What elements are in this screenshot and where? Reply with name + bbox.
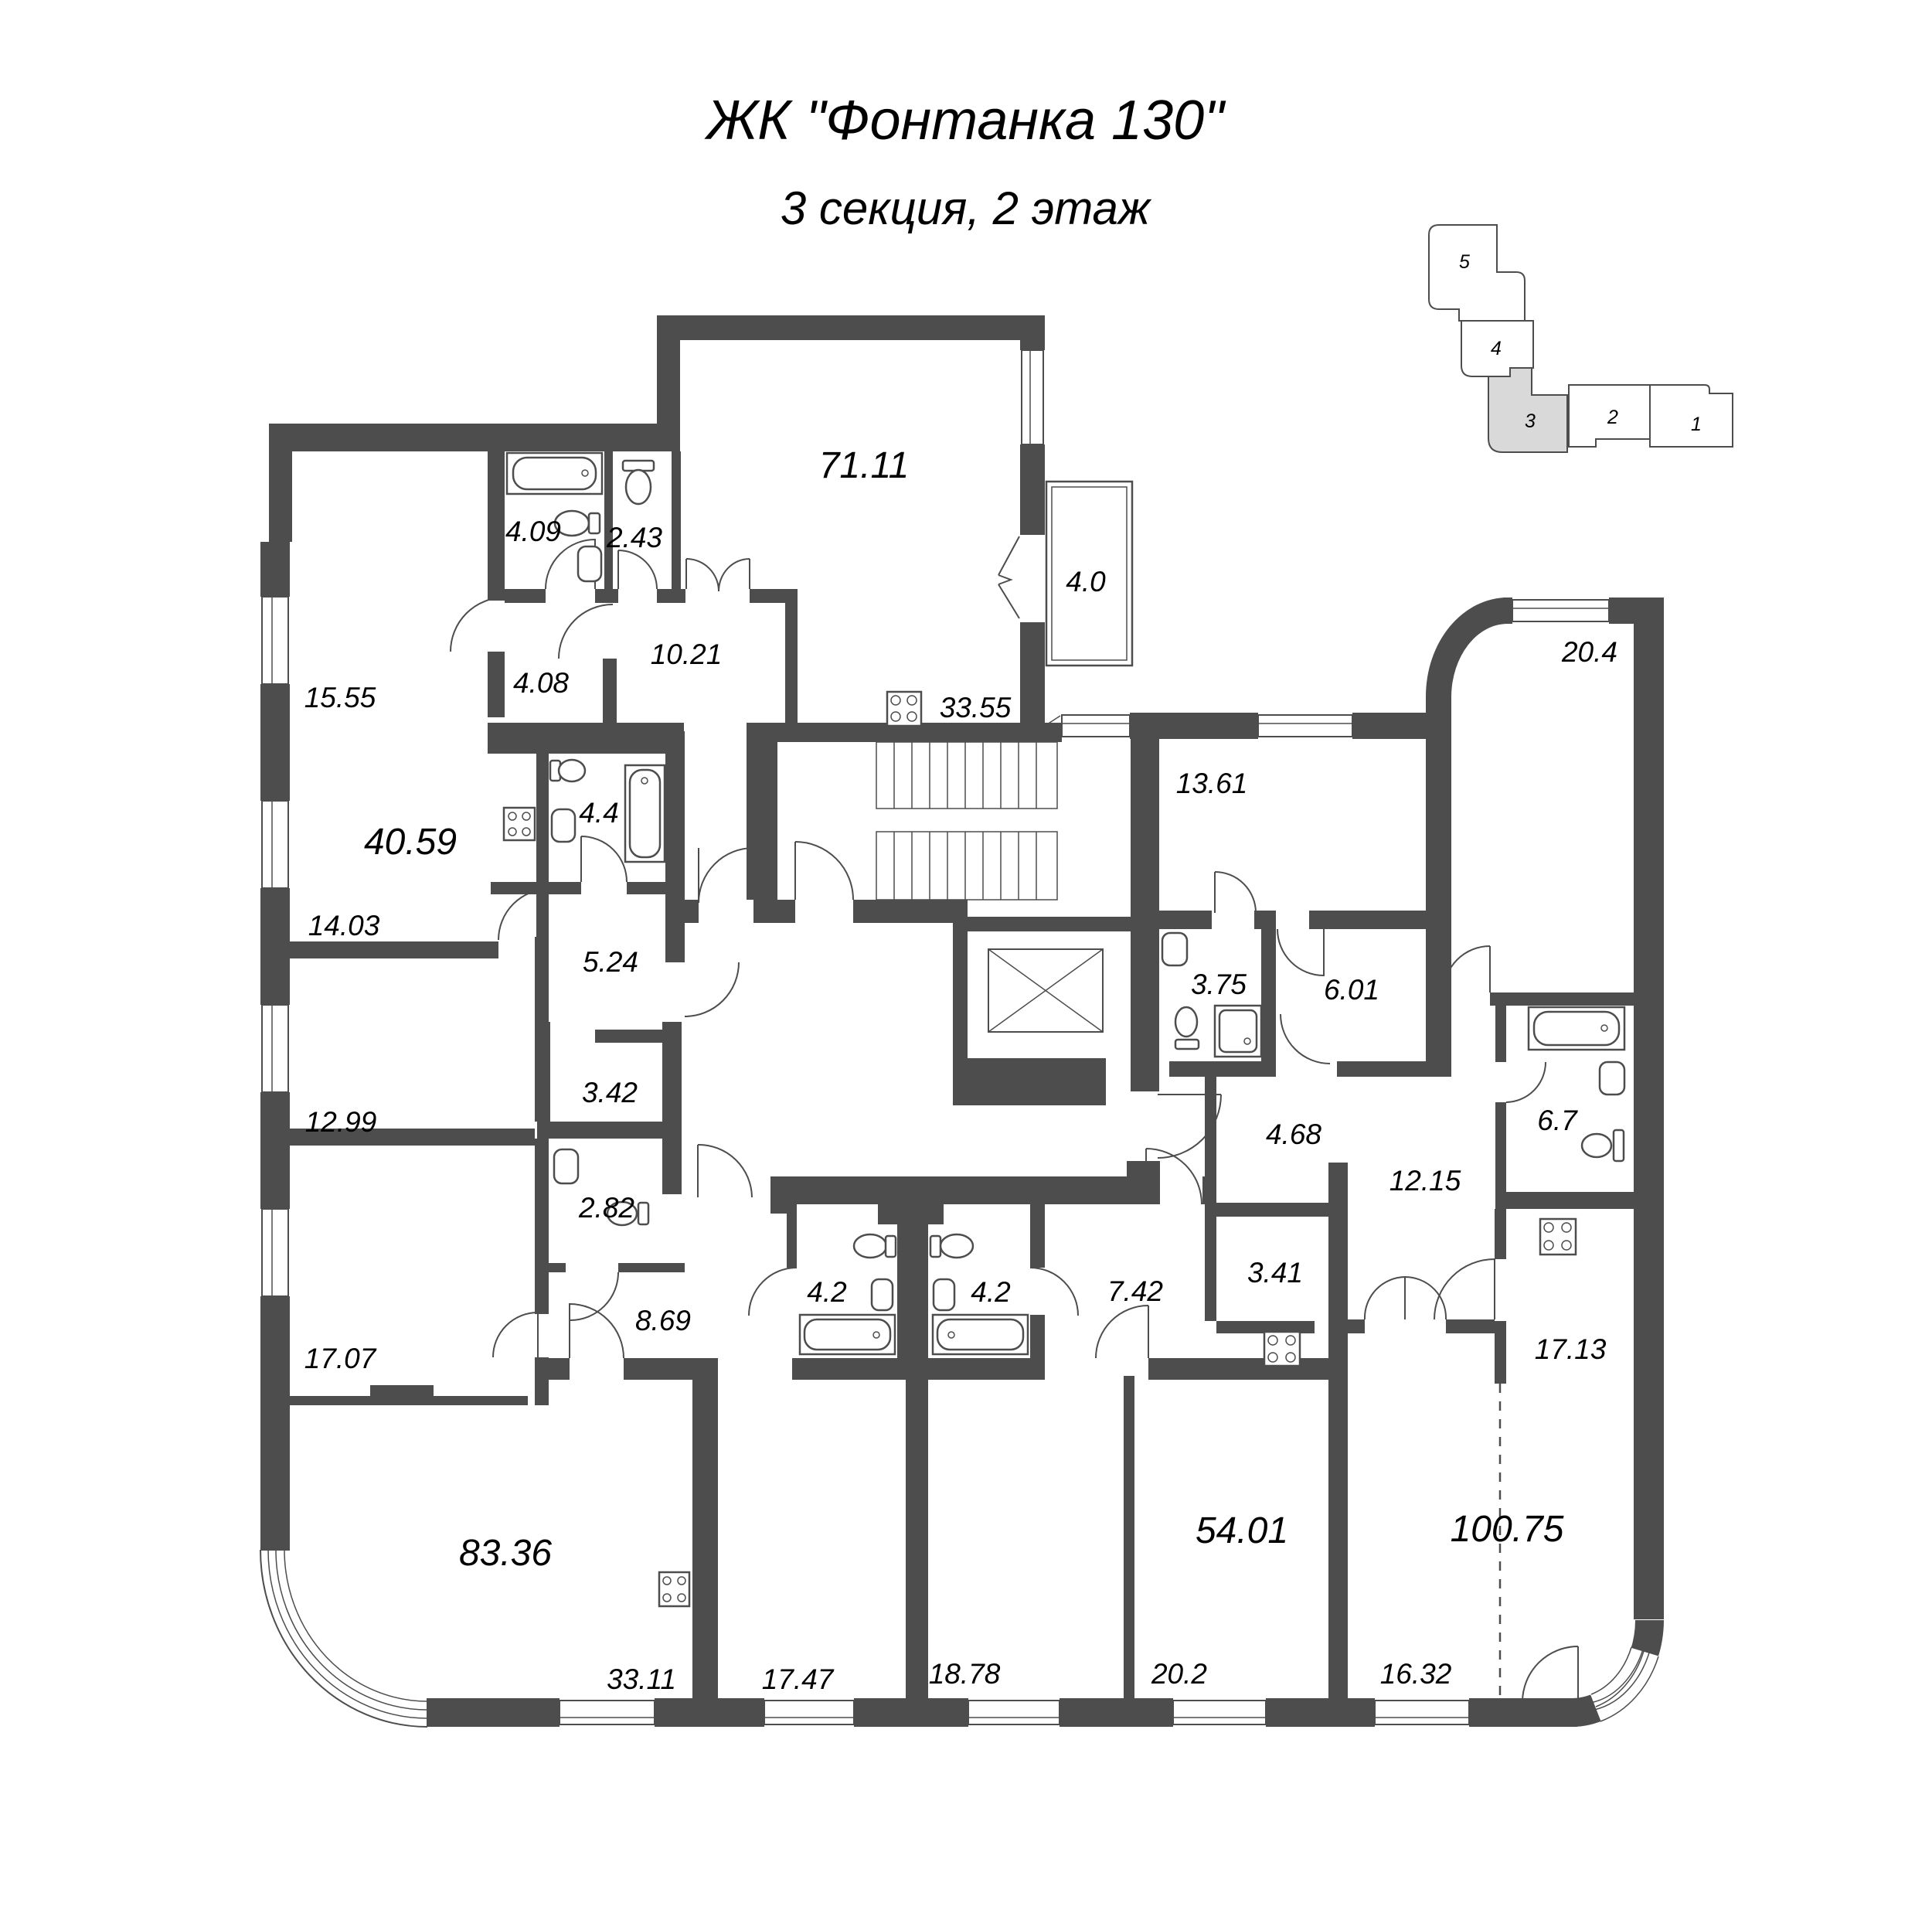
svg-text:17.07: 17.07 (304, 1343, 377, 1374)
svg-text:3.41: 3.41 (1247, 1257, 1303, 1289)
svg-text:3.75: 3.75 (1191, 969, 1247, 1000)
svg-text:4: 4 (1491, 338, 1502, 359)
svg-text:15.55: 15.55 (304, 682, 376, 713)
svg-text:3.42: 3.42 (582, 1077, 638, 1108)
svg-text:33.11: 33.11 (607, 1663, 676, 1695)
svg-text:4.4: 4.4 (579, 797, 618, 829)
svg-text:17.47: 17.47 (762, 1663, 835, 1695)
svg-text:12.15: 12.15 (1389, 1165, 1461, 1197)
svg-text:6.7: 6.7 (1537, 1105, 1578, 1136)
svg-text:16.32: 16.32 (1380, 1658, 1452, 1690)
svg-text:4.08: 4.08 (513, 667, 569, 699)
svg-text:14.03: 14.03 (308, 910, 380, 941)
svg-text:4.68: 4.68 (1266, 1118, 1321, 1150)
svg-text:4.09: 4.09 (505, 516, 561, 547)
svg-text:3 секция, 2 этаж: 3 секция, 2 этаж (781, 182, 1152, 234)
svg-text:3: 3 (1525, 410, 1536, 432)
svg-text:12.99: 12.99 (305, 1106, 377, 1138)
svg-text:17.13: 17.13 (1535, 1333, 1607, 1365)
svg-text:1: 1 (1691, 414, 1702, 435)
svg-text:13.61: 13.61 (1176, 768, 1248, 799)
svg-text:6.01: 6.01 (1324, 974, 1379, 1006)
svg-text:4.2: 4.2 (807, 1276, 847, 1308)
svg-text:100.75: 100.75 (1451, 1509, 1564, 1550)
svg-text:71.11: 71.11 (819, 445, 910, 486)
svg-text:5.24: 5.24 (583, 946, 638, 978)
svg-text:2.43: 2.43 (606, 522, 662, 553)
svg-text:33.55: 33.55 (940, 692, 1012, 723)
svg-text:ЖК "Фонтанка 130": ЖК "Фонтанка 130" (704, 90, 1226, 152)
svg-text:18.78: 18.78 (929, 1658, 1001, 1690)
svg-text:4.2: 4.2 (971, 1276, 1011, 1308)
svg-text:5: 5 (1459, 251, 1470, 273)
svg-text:8.69: 8.69 (635, 1305, 691, 1336)
svg-text:54.01: 54.01 (1196, 1510, 1288, 1551)
svg-text:20.4: 20.4 (1561, 636, 1617, 668)
svg-text:2: 2 (1607, 407, 1618, 428)
svg-text:20.2: 20.2 (1151, 1658, 1207, 1690)
svg-text:83.36: 83.36 (459, 1533, 552, 1574)
svg-text:2.82: 2.82 (578, 1192, 634, 1224)
svg-text:4.0: 4.0 (1066, 566, 1106, 598)
svg-text:40.59: 40.59 (364, 822, 457, 863)
svg-text:7.42: 7.42 (1107, 1275, 1163, 1307)
svg-text:10.21: 10.21 (651, 638, 723, 670)
